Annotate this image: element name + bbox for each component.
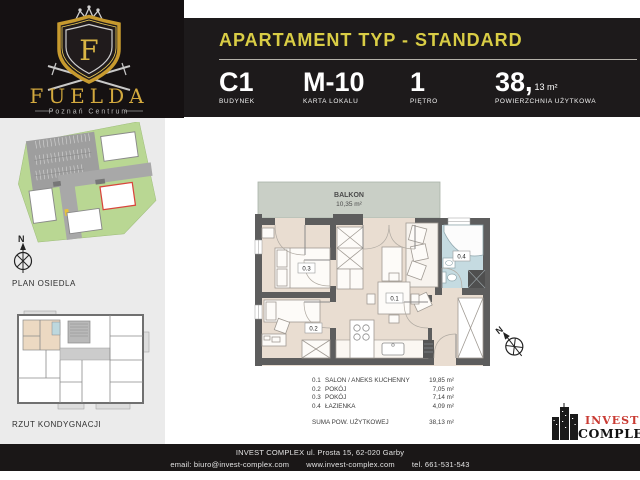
toilet-tank	[442, 272, 446, 283]
site-plan-caption: PLAN OSIEDLA	[12, 279, 76, 288]
floor-plan-caption: RZUT KONDYGNACJI	[12, 420, 101, 429]
room-label-0-4: 0.4	[457, 255, 466, 261]
brand-name: FUELDA	[29, 84, 148, 108]
brand-logo-box: F FUELDA Poznań Centrum	[0, 0, 184, 118]
room-legend: 0.1 SALON / ANEKS KUCHENNY 19,85 m² 0.2 …	[312, 377, 454, 427]
legend-total-row: SUMA POW. UŻYTKOWEJ 38,13 m²	[312, 418, 454, 427]
footer-contacts: email: biuro@invest-complex.com www.inve…	[0, 460, 640, 469]
footer-website: www.invest-complex.com	[306, 460, 395, 469]
dining-chair	[367, 294, 375, 304]
footer-email: email: biuro@invest-complex.com	[170, 460, 289, 469]
footer-bar: INVEST COMPLEX ul. Prosta 15, 62-020 Gar…	[0, 444, 640, 471]
room-label-0-3: 0.3	[302, 267, 311, 273]
apartment-floor-plan: BALKON 10,35 m²	[252, 172, 502, 372]
stat-floor-label: PIĘTRO	[410, 98, 438, 105]
brand-subtitle: Poznań Centrum	[49, 109, 130, 116]
legend-name: ŁAZIENKA	[325, 403, 433, 412]
site-building-c	[67, 208, 102, 233]
legend-total-area: 38,13 m²	[429, 418, 454, 427]
header-divider	[219, 59, 637, 60]
compass-icon: N	[10, 233, 36, 275]
stat-building: C1 BUDYNEK	[219, 68, 256, 105]
balcony-label: BALKON	[334, 192, 364, 199]
legend-name: SALON / ANEKS KUCHENNY	[325, 377, 429, 386]
legend-area: 7,05 m²	[433, 386, 454, 395]
sofa-cushion	[411, 244, 429, 262]
dining-chair	[389, 273, 399, 281]
sofa-cushion	[408, 225, 426, 243]
brand-monogram: F	[79, 34, 98, 67]
apartment-header: APARTAMENT TYP - STANDARD C1 BUDYNEK M-1…	[184, 18, 640, 117]
legend-row: 0.2 POKÓJ 7,05 m²	[312, 386, 454, 395]
compass-n-letter: N	[18, 234, 25, 244]
stat-unit-card-label: KARTA LOKALU	[303, 98, 367, 105]
room-label-0-2: 0.2	[309, 327, 318, 333]
footer-phone: tel. 661-531-543	[412, 460, 470, 469]
balcony: BALKON 10,35 m²	[258, 182, 440, 218]
stat-area: 38,13 m² POWIERZCHNIA UŻYTKOWA	[495, 68, 596, 105]
legend-row: 0.1 SALON / ANEKS KUCHENNY 19,85 m²	[312, 377, 454, 386]
stat-building-value: C1	[219, 68, 254, 96]
room-label-0-1: 0.1	[390, 297, 399, 303]
stat-unit-card-value: M-10	[303, 68, 365, 96]
partner-name-bottom: COMPLEX	[578, 426, 640, 441]
legend-name: POKÓJ	[325, 386, 433, 395]
compass-n-letter: N	[494, 324, 505, 336]
legend-no: 0.4	[312, 403, 325, 412]
stat-area-suffix: 13 m²	[535, 82, 558, 92]
fuelda-logo: F FUELDA Poznań Centrum	[14, 3, 164, 117]
site-building-d	[29, 188, 56, 223]
stat-floor-value: 1	[410, 68, 425, 96]
legend-row: 0.3 POKÓJ 7,14 m²	[312, 394, 454, 403]
thumb-corridor	[60, 348, 110, 360]
site-building-highlighted	[100, 182, 135, 209]
toilet	[448, 274, 457, 281]
stat-area-label: POWIERZCHNIA UŻYTKOWA	[495, 98, 596, 105]
stat-building-label: BUDYNEK	[219, 98, 256, 105]
invest-complex-logo: INVEST COMPLEX	[548, 402, 640, 444]
footer-address: INVEST COMPLEX ul. Prosta 15, 62-020 Gar…	[0, 448, 640, 457]
thumb-staircase	[68, 321, 90, 343]
buildings-icon	[552, 403, 578, 440]
legend-area: 19,85 m²	[429, 377, 454, 386]
legend-row: 0.4 ŁAZIENKA 4,09 m²	[312, 403, 454, 412]
stat-area-value: 38,	[495, 68, 533, 96]
page-title: APARTAMENT TYP - STANDARD	[219, 30, 523, 51]
site-building-a	[101, 132, 139, 161]
stat-unit-card: M-10 KARTA LOKALU	[303, 68, 367, 105]
apartment-card-page: F FUELDA Poznań Centrum APARTAMENT TYP -…	[0, 0, 640, 480]
legend-no: 0.1	[312, 377, 325, 386]
legend-no: 0.2	[312, 386, 325, 395]
hall-wardrobe	[458, 298, 483, 358]
nightstand	[262, 228, 274, 238]
stat-floor: 1 PIĘTRO	[410, 68, 438, 105]
legend-name: POKÓJ	[325, 394, 433, 403]
balcony-area: 10,35 m²	[336, 201, 362, 208]
kitchen-sink	[382, 343, 404, 355]
dining-chair	[389, 315, 399, 323]
stove	[350, 320, 374, 358]
legend-area: 7,14 m²	[433, 394, 454, 403]
legend-area: 4,09 m²	[433, 403, 454, 412]
dishwasher	[423, 340, 434, 358]
legend-total-label: SUMA POW. UŻYTKOWEJ	[312, 418, 429, 427]
legend-no: 0.3	[312, 394, 325, 403]
storey-plan-thumbnail	[10, 308, 155, 416]
thumb-bathroom	[52, 322, 60, 335]
